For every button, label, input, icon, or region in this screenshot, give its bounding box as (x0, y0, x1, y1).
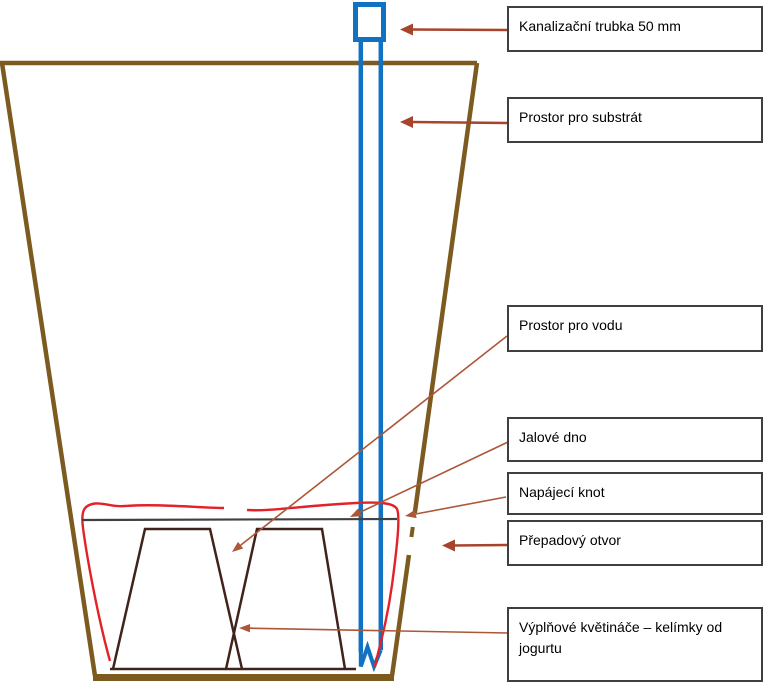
label-vyplnove-kvetinace: Výplňové květináče – kelímky od jogurtu (507, 607, 763, 682)
inner-cups (110, 529, 356, 669)
label-prepadovy-otvor: Přepadový otvor (507, 520, 763, 566)
leader-filler-cups (239, 624, 508, 633)
label-prostor-pro-substrat: Prostor pro substrát (507, 97, 763, 143)
wick-line (82, 503, 398, 667)
label-jalove-dno-text: Jalové dno (519, 429, 587, 445)
label-prostor-pro-vodu-text: Prostor pro vodu (519, 317, 623, 333)
label-prostor-pro-vodu: Prostor pro vodu (507, 305, 763, 352)
label-napajeci-knot: Napájecí knot (507, 472, 763, 515)
arrow-pipe (400, 24, 507, 36)
cup-left (113, 529, 242, 669)
self-watering-planter-diagram: Kanalizační trubka 50 mm Prostor pro sub… (0, 0, 764, 684)
label-vyplnove-kvetinace-text: Výplňové květináče – kelímky od jogurtu (519, 619, 722, 656)
label-prostor-pro-substrat-text: Prostor pro substrát (519, 109, 642, 125)
arrow-substrate (400, 116, 507, 128)
label-prepadovy-otvor-text: Přepadový otvor (519, 532, 621, 548)
cup-right (226, 529, 345, 669)
label-napajeci-knot-text: Napájecí knot (519, 484, 605, 500)
label-kanalizacni-trubka-text: Kanalizační trubka 50 mm (519, 18, 681, 34)
leader-wick (405, 497, 506, 518)
arrow-overflow (442, 540, 507, 552)
false-bottom-line (82, 519, 397, 520)
pipe-coupling (356, 5, 384, 40)
leader-false-bottom (350, 442, 508, 517)
label-kanalizacni-trubka: Kanalizační trubka 50 mm (507, 6, 763, 52)
drain-pipe (356, 5, 384, 667)
pot-outline (2, 63, 477, 678)
label-jalove-dno: Jalové dno (507, 417, 763, 462)
